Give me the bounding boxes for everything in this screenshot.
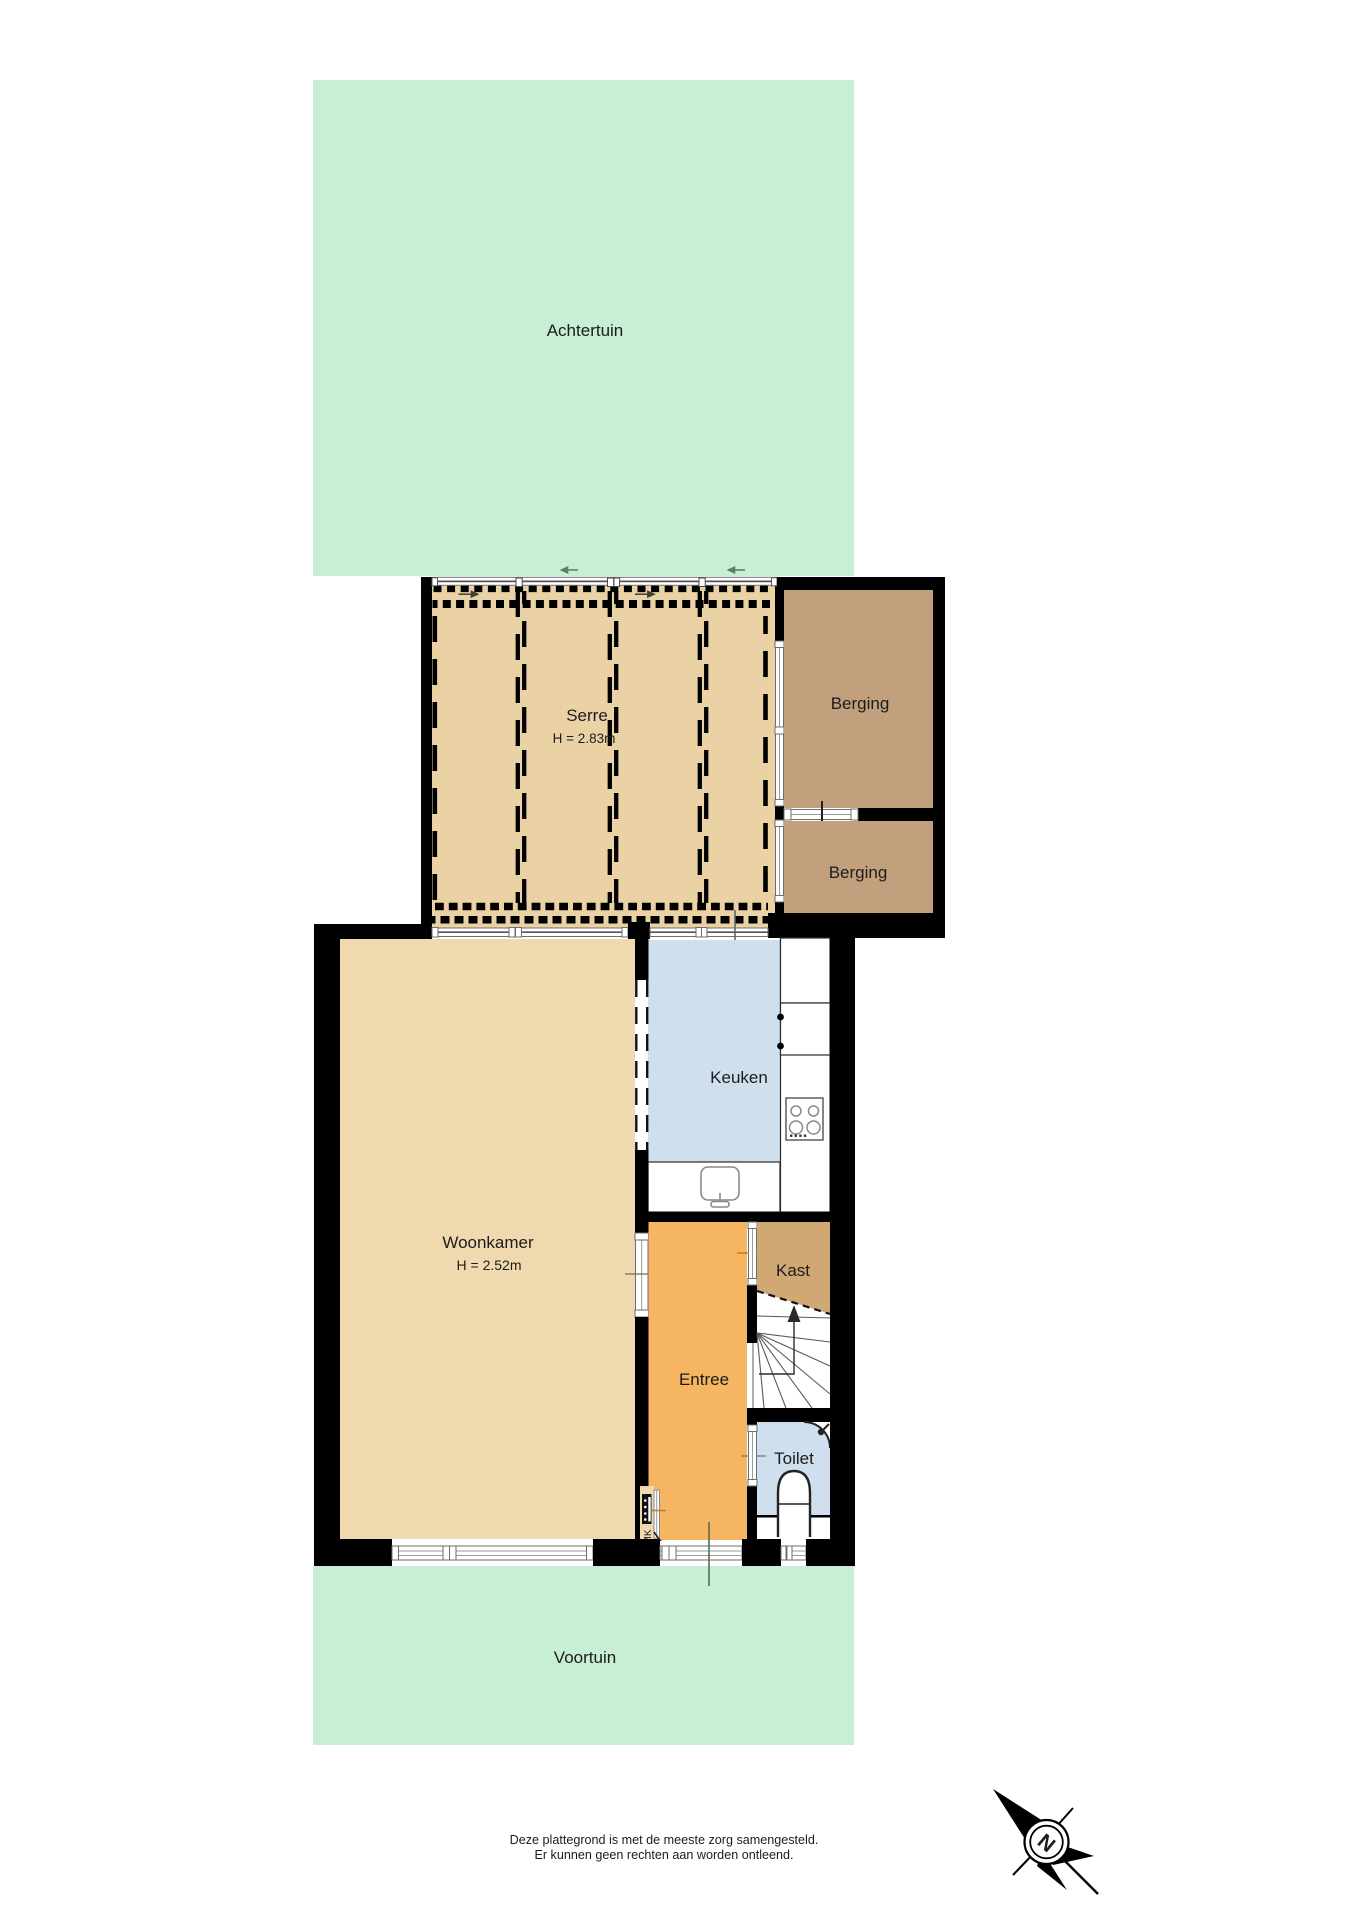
svg-text:Serre: Serre bbox=[566, 706, 608, 725]
svg-text:H = 2.52m: H = 2.52m bbox=[457, 1257, 522, 1273]
svg-text:Achtertuin: Achtertuin bbox=[547, 321, 624, 340]
svg-text:Keuken: Keuken bbox=[710, 1068, 768, 1087]
svg-text:Berging: Berging bbox=[829, 863, 888, 882]
svg-text:Deze plattegrond is met de mee: Deze plattegrond is met de meeste zorg s… bbox=[510, 1833, 819, 1847]
svg-text:Er kunnen geen rechten aan wor: Er kunnen geen rechten aan worden ontlee… bbox=[534, 1848, 793, 1862]
svg-text:Toilet: Toilet bbox=[774, 1449, 814, 1468]
svg-text:H = 2.83m: H = 2.83m bbox=[553, 731, 616, 746]
svg-text:Voortuin: Voortuin bbox=[554, 1648, 616, 1667]
svg-text:Woonkamer: Woonkamer bbox=[442, 1233, 534, 1252]
svg-text:Berging: Berging bbox=[831, 694, 890, 713]
svg-text:Entree: Entree bbox=[679, 1370, 729, 1389]
svg-text:Kast: Kast bbox=[776, 1261, 810, 1280]
